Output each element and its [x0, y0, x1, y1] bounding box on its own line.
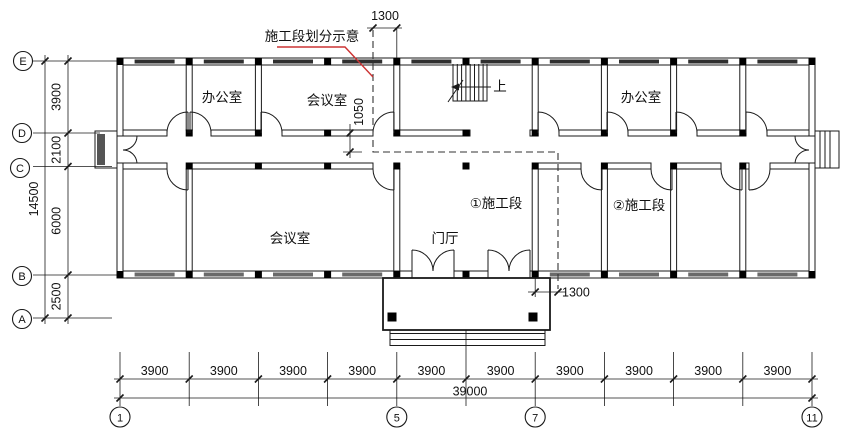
dim-bay: 3900: [348, 364, 376, 378]
dim-bay: 3900: [279, 364, 307, 378]
dim-top-1300-label: 1300: [371, 9, 399, 23]
stairs-up-label: 上: [493, 79, 507, 94]
grid-bubbles-bottom: [110, 407, 822, 427]
dim-bottom-total: 39000: [453, 385, 488, 399]
stairs-direction-arrow: [451, 84, 459, 91]
floor-plan-canvas: 上 施工段划分示意 1300 1050 1300 3900 2100 6000 …: [0, 0, 845, 437]
floor-plan-svg: 上 施工段划分示意 1300 1050 1300 3900 2100 6000 …: [0, 0, 845, 437]
room-label-office-west: 办公室: [202, 89, 243, 105]
dim-bay: 3900: [625, 364, 653, 378]
grid-row-label: E: [19, 56, 26, 68]
grid-row-label: C: [16, 163, 24, 175]
dim-bay: 3900: [763, 364, 791, 378]
room-label-lobby: 门厅: [432, 231, 459, 246]
grid-row-label: B: [18, 271, 25, 283]
stairs: [448, 64, 491, 102]
dim-1050: [343, 124, 362, 158]
dim-bay: 3900: [487, 364, 515, 378]
room-label-office-east: 办公室: [621, 89, 662, 105]
dim-left-segment: 6000: [50, 207, 64, 235]
dim-bay: 3900: [556, 364, 584, 378]
room-label-meeting-north: 会议室: [307, 92, 348, 108]
room-label-meeting-south: 会议室: [270, 230, 311, 246]
dim-left-total: 14500: [27, 182, 41, 217]
grid-row-label: A: [18, 314, 26, 326]
grid-col-label: 7: [532, 413, 538, 425]
dim-top-1300: [367, 25, 402, 59]
dim-bay: 3900: [141, 364, 169, 378]
east-vestibule: [815, 131, 839, 168]
dim-left-segment: 3900: [50, 83, 64, 111]
dim-bay: 3900: [694, 364, 722, 378]
porch: [383, 278, 550, 346]
dim-bottom-1300: [528, 278, 566, 297]
label-construction-section-1: ①施工段: [470, 196, 523, 211]
grid-extension-lines-left: [33, 61, 117, 318]
dim-1050-label: 1050: [352, 98, 366, 126]
west-vestibule: [95, 131, 117, 168]
grid-col-label: 5: [394, 413, 400, 425]
label-construction-section-2: ②施工段: [613, 198, 666, 213]
grid-col-label: 1: [117, 413, 123, 425]
dim-bay: 3900: [417, 364, 445, 378]
divider-note: 施工段划分示意: [265, 28, 360, 44]
dim-bay: 3900: [210, 364, 238, 378]
grid-col-label: 11: [806, 413, 817, 425]
dim-bottom-1300-label: 1300: [562, 286, 590, 300]
grid-row-label: D: [18, 128, 26, 140]
dim-left-segment: 2500: [50, 283, 64, 311]
dim-left-segment: 2100: [50, 136, 64, 164]
